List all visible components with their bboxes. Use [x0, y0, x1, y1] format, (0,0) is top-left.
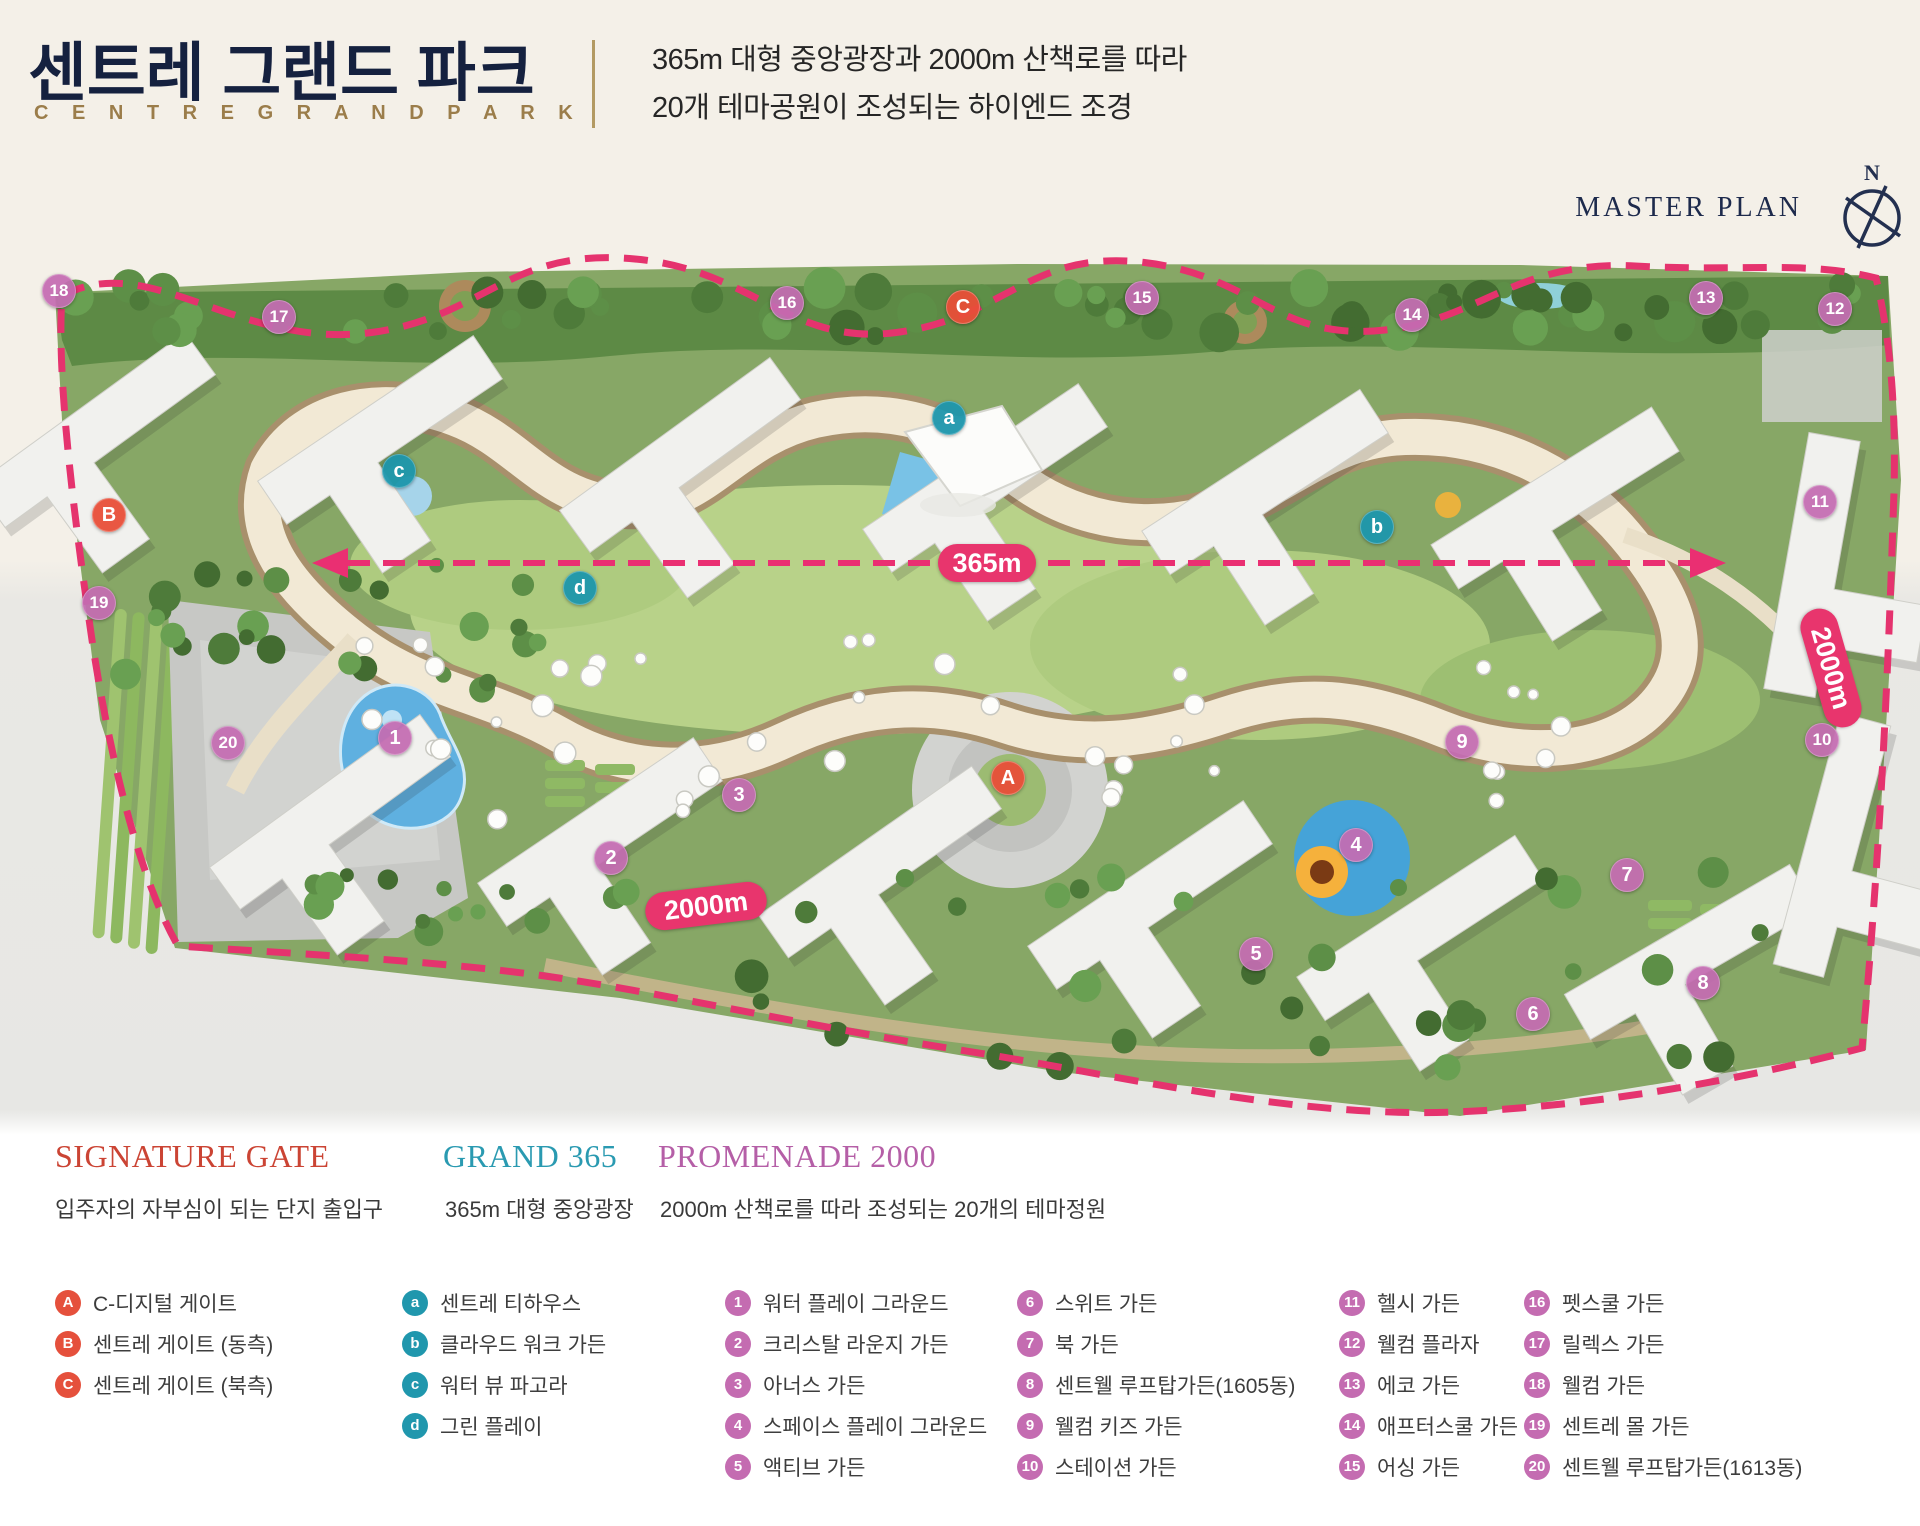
legend-item-label: C-디지털 게이트 — [93, 1288, 237, 1318]
page-title-english: C E N T R E G R A N D P A R K — [34, 102, 582, 125]
map-badge-3: 3 — [722, 778, 756, 812]
legend-item-label: 북 가든 — [1055, 1329, 1119, 1359]
map-badge-A: A — [991, 761, 1025, 795]
subtitle-line-1: 365m 대형 중앙광장과 2000m 산책로를 따라 — [652, 36, 1187, 78]
legend-badge-18: 18 — [1524, 1372, 1550, 1398]
northeast-plaza — [1762, 330, 1882, 422]
legend-item-17: 17릴렉스 가든 — [1524, 1323, 1802, 1364]
legend-badge-20: 20 — [1524, 1454, 1550, 1480]
map-badge-20: 20 — [211, 726, 245, 760]
legend-column-promenade-4: 16펫스쿨 가든17릴렉스 가든18웰컴 가든19센트레 몰 가든20센트웰 루… — [1524, 1282, 1802, 1487]
map-badge-5: 5 — [1239, 937, 1273, 971]
map-badge-1: 1 — [378, 721, 412, 755]
legend-item-7: 7북 가든 — [1017, 1323, 1295, 1364]
legend-subtitle-signature-gate: 입주자의 자부심이 되는 단지 출입구 — [55, 1192, 383, 1224]
legend-item-label: 워터 뷰 파고라 — [440, 1370, 568, 1400]
legend-badge-12: 12 — [1339, 1331, 1365, 1357]
legend-badge-7: 7 — [1017, 1331, 1043, 1357]
legend-badge-a: a — [402, 1290, 428, 1316]
legend-item-2: 2크리스탈 라운지 가든 — [725, 1323, 987, 1364]
legend-item-5: 5액티브 가든 — [725, 1446, 987, 1487]
legend-badge-15: 15 — [1339, 1454, 1365, 1480]
map-badge-19: 19 — [82, 586, 116, 620]
legend-badge-8: 8 — [1017, 1372, 1043, 1398]
legend-badge-11: 11 — [1339, 1290, 1365, 1316]
legend-item-label: 센트웰 루프탑가든(1605동) — [1055, 1370, 1295, 1400]
map-badge-17: 17 — [262, 300, 296, 334]
map-badge-11: 11 — [1803, 485, 1837, 519]
legend-item-d: d그린 플레이 — [402, 1405, 606, 1446]
legend-badge-3: 3 — [725, 1372, 751, 1398]
legend-item-13: 13에코 가든 — [1339, 1364, 1518, 1405]
map-badge-7: 7 — [1610, 858, 1644, 892]
legend-badge-14: 14 — [1339, 1413, 1365, 1439]
map-badge-d: d — [563, 571, 597, 605]
legend-badge-19: 19 — [1524, 1413, 1550, 1439]
legend-item-6: 6스위트 가든 — [1017, 1282, 1295, 1323]
legend-item-label: 클라우드 워크 가든 — [440, 1329, 606, 1359]
legend-item-4: 4스페이스 플레이 그라운드 — [725, 1405, 987, 1446]
legend-item-19: 19센트레 몰 가든 — [1524, 1405, 1802, 1446]
page-title: 센트레 그랜드 파크 — [28, 22, 535, 114]
legend-title-signature-gate: SIGNATURE GATE — [55, 1138, 330, 1175]
legend-item-label: 에코 가든 — [1377, 1370, 1460, 1400]
legend-item-3: 3아너스 가든 — [725, 1364, 987, 1405]
map-badge-b: b — [1360, 510, 1394, 544]
map-badge-c: c — [382, 454, 416, 488]
legend-item-label: 스페이스 플레이 그라운드 — [763, 1411, 987, 1441]
legend-item-label: 웰컴 가든 — [1562, 1370, 1645, 1400]
legend-item-label: 웰컴 키즈 가든 — [1055, 1411, 1183, 1441]
legend-column-signature: AC-디지털 게이트B센트레 게이트 (동측)C센트레 게이트 (북측) — [55, 1282, 273, 1405]
legend-badge-A: A — [55, 1290, 81, 1316]
compass-north-label: N — [1834, 160, 1910, 186]
legend-item-label: 어싱 가든 — [1377, 1452, 1460, 1482]
legend-badge-c: c — [402, 1372, 428, 1398]
legend-item-label: 센트레 티하우스 — [440, 1288, 581, 1318]
legend-item-label: 크리스탈 라운지 가든 — [763, 1329, 949, 1359]
legend-column-promenade-1: 1워터 플레이 그라운드2크리스탈 라운지 가든3아너스 가든4스페이스 플레이… — [725, 1282, 987, 1487]
legend-item-16: 16펫스쿨 가든 — [1524, 1282, 1802, 1323]
map-badge-14: 14 — [1395, 298, 1429, 332]
legend-item-20: 20센트웰 루프탑가든(1613동) — [1524, 1446, 1802, 1487]
master-plan-page: 센트레 그랜드 파크 C E N T R E G R A N D P A R K… — [0, 0, 1920, 1526]
map-badge-8: 8 — [1686, 966, 1720, 1000]
subtitle-line-2: 20개 테마공원이 조성되는 하이엔드 조경 — [652, 84, 1132, 126]
legend-item-10: 10스테이션 가든 — [1017, 1446, 1295, 1487]
legend-badge-2: 2 — [725, 1331, 751, 1357]
header-divider — [592, 40, 595, 128]
legend-item-label: 헬시 가든 — [1377, 1288, 1460, 1318]
legend-subtitle-promenade-2000: 2000m 산책로를 따라 조성되는 20개의 테마정원 — [660, 1192, 1106, 1224]
legend-item-label: 아너스 가든 — [763, 1370, 865, 1400]
legend-item-B: B센트레 게이트 (동측) — [55, 1323, 273, 1364]
legend-column-promenade-3: 11헬시 가든12웰컴 플라자13에코 가든14애프터스쿨 가든15어싱 가든 — [1339, 1282, 1518, 1487]
map-badge-4: 4 — [1339, 828, 1373, 862]
legend-item-12: 12웰컴 플라자 — [1339, 1323, 1518, 1364]
map-badge-13: 13 — [1689, 281, 1723, 315]
legend-badge-1: 1 — [725, 1290, 751, 1316]
legend-item-b: b클라우드 워크 가든 — [402, 1323, 606, 1364]
label-365m: 365m — [938, 544, 1036, 582]
legend-badge-6: 6 — [1017, 1290, 1043, 1316]
map-badge-C: C — [946, 290, 980, 324]
map-badge-12: 12 — [1818, 292, 1852, 326]
legend-item-18: 18웰컴 가든 — [1524, 1364, 1802, 1405]
legend-column-promenade-2: 6스위트 가든7북 가든8센트웰 루프탑가든(1605동)9웰컴 키즈 가든10… — [1017, 1282, 1295, 1487]
legend-item-label: 애프터스쿨 가든 — [1377, 1411, 1518, 1441]
legend-item-15: 15어싱 가든 — [1339, 1446, 1518, 1487]
legend-item-A: AC-디지털 게이트 — [55, 1282, 273, 1323]
legend-badge-17: 17 — [1524, 1331, 1550, 1357]
master-plan-label: MASTER PLAN — [1540, 192, 1802, 224]
legend-item-label: 센트레 게이트 (북측) — [93, 1370, 273, 1400]
legend-item-11: 11헬시 가든 — [1339, 1282, 1518, 1323]
legend-item-label: 센트레 몰 가든 — [1562, 1411, 1690, 1441]
legend-badge-C: C — [55, 1372, 81, 1398]
map-badge-15: 15 — [1125, 281, 1159, 315]
legend-item-label: 센트레 게이트 (동측) — [93, 1329, 273, 1359]
legend-item-label: 스테이션 가든 — [1055, 1452, 1177, 1482]
legend-item-label: 센트웰 루프탑가든(1613동) — [1562, 1452, 1802, 1482]
legend-item-8: 8센트웰 루프탑가든(1605동) — [1017, 1364, 1295, 1405]
legend-title-grand-365: GRAND 365 — [443, 1138, 617, 1175]
site-aerial-map — [0, 240, 1920, 1145]
map-badge-9: 9 — [1445, 725, 1479, 759]
legend-item-14: 14애프터스쿨 가든 — [1339, 1405, 1518, 1446]
legend-item-label: 그린 플레이 — [440, 1411, 542, 1441]
legend-column-grand: a센트레 티하우스b클라우드 워크 가든c워터 뷰 파고라d그린 플레이 — [402, 1282, 606, 1446]
map-badge-a: a — [932, 401, 966, 435]
legend-item-a: a센트레 티하우스 — [402, 1282, 606, 1323]
legend-badge-d: d — [402, 1413, 428, 1439]
legend-badge-b: b — [402, 1331, 428, 1357]
legend-item-label: 펫스쿨 가든 — [1562, 1288, 1664, 1318]
map-badge-B: B — [92, 498, 126, 532]
legend-badge-5: 5 — [725, 1454, 751, 1480]
map-badge-18: 18 — [42, 274, 76, 308]
map-badge-10: 10 — [1805, 723, 1839, 757]
legend-badge-B: B — [55, 1331, 81, 1357]
legend-badge-9: 9 — [1017, 1413, 1043, 1439]
legend-item-1: 1워터 플레이 그라운드 — [725, 1282, 987, 1323]
map-badge-6: 6 — [1516, 997, 1550, 1031]
legend-subtitle-grand-365: 365m 대형 중앙광장 — [445, 1192, 634, 1224]
legend-badge-16: 16 — [1524, 1290, 1550, 1316]
map-badge-16: 16 — [770, 286, 804, 320]
legend-item-label: 워터 플레이 그라운드 — [763, 1288, 949, 1318]
legend-item-9: 9웰컴 키즈 가든 — [1017, 1405, 1295, 1446]
legend-item-label: 스위트 가든 — [1055, 1288, 1157, 1318]
legend-badge-4: 4 — [725, 1413, 751, 1439]
legend-title-promenade-2000: PROMENADE 2000 — [658, 1138, 936, 1175]
map-badge-2: 2 — [594, 841, 628, 875]
legend-item-C: C센트레 게이트 (북측) — [55, 1364, 273, 1405]
legend-badge-10: 10 — [1017, 1454, 1043, 1480]
legend-item-c: c워터 뷰 파고라 — [402, 1364, 606, 1405]
legend-item-label: 웰컴 플라자 — [1377, 1329, 1479, 1359]
legend-item-label: 릴렉스 가든 — [1562, 1329, 1664, 1359]
legend-badge-13: 13 — [1339, 1372, 1365, 1398]
legend-item-label: 액티브 가든 — [763, 1452, 865, 1482]
